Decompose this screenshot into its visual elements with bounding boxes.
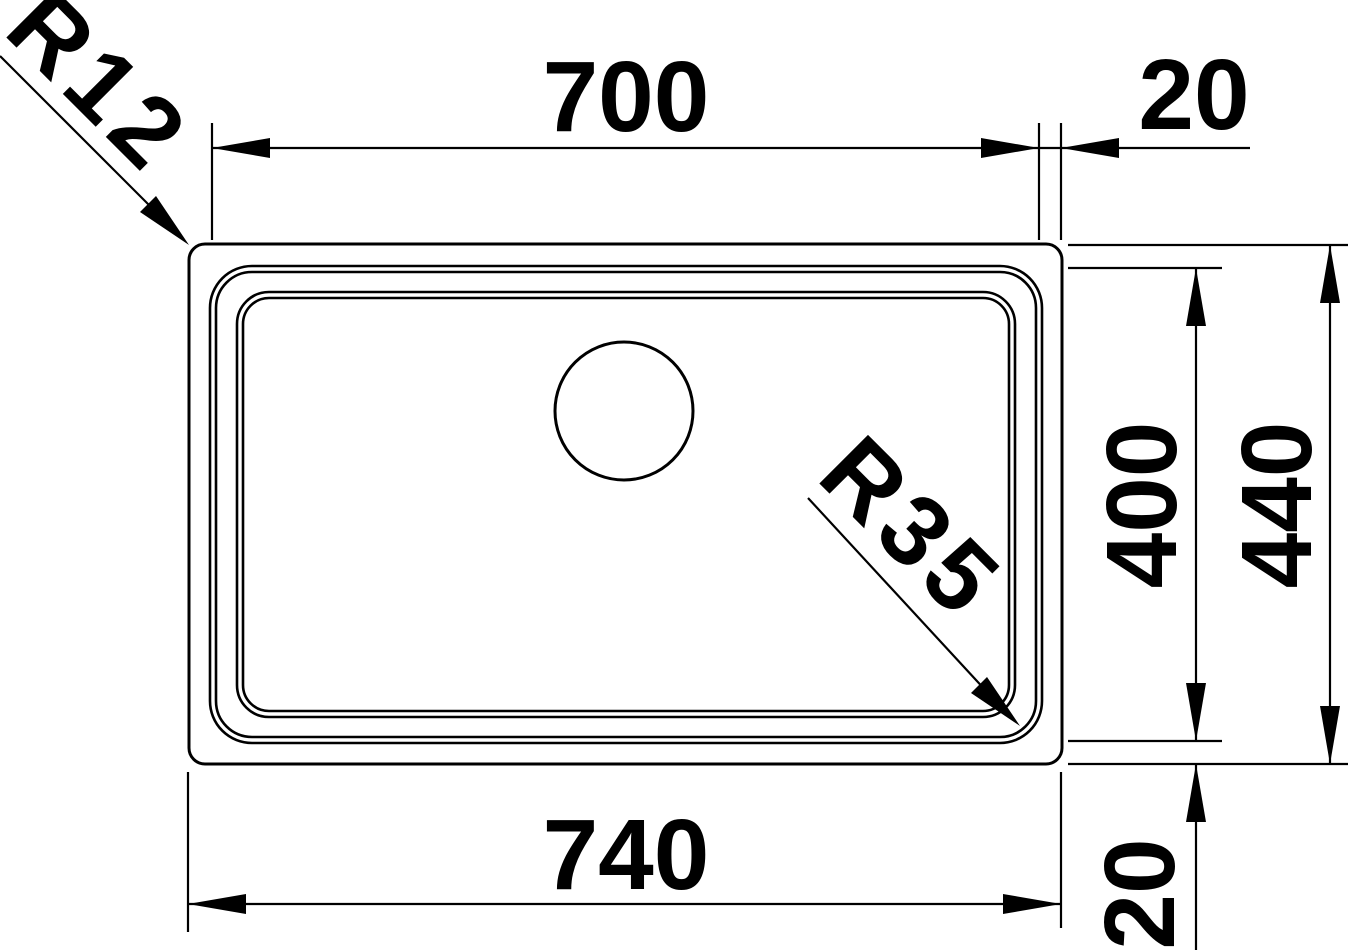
dimension-value-inner-height: 400	[1086, 422, 1198, 589]
arrowhead-down	[1320, 706, 1340, 764]
dimension-top-right-offset-20: 20	[1061, 39, 1250, 158]
arrowhead-up	[1320, 245, 1340, 303]
radius-callout-r12: R12	[0, 0, 212, 245]
radius-value-bowl-corner: R35	[799, 415, 1025, 641]
sink-dimension-drawing: 700 20 400 440 20	[0, 0, 1354, 950]
arrowhead-up	[1186, 268, 1206, 326]
dimension-inner-height-400: 400	[1068, 268, 1222, 741]
dimension-value-bottom-width: 740	[543, 799, 710, 911]
arrowhead-right	[981, 138, 1039, 158]
arrowhead-right	[1003, 894, 1061, 914]
dimension-bottom-right-offset-20: 20	[1084, 764, 1206, 950]
technical-drawing-page: 700 20 400 440 20	[0, 0, 1354, 950]
dimension-value-top-width: 700	[543, 41, 710, 153]
dimension-value-bottom-right-offset: 20	[1084, 838, 1196, 949]
dimension-top-width-700: 700	[212, 41, 1250, 240]
arrowhead-down	[1186, 683, 1206, 741]
dimension-value-top-right-offset: 20	[1138, 39, 1249, 151]
drain-hole-circle	[555, 342, 693, 480]
arrowhead-up	[1186, 764, 1206, 822]
arrowhead-left	[212, 138, 270, 158]
arrowhead-diagonal	[971, 677, 1020, 726]
dimension-bottom-width-740: 740	[188, 772, 1061, 932]
dimension-value-outer-height: 440	[1221, 422, 1333, 589]
radius-value-outer-corner: R12	[0, 0, 212, 195]
arrowhead-left	[1061, 138, 1119, 158]
radius-callout-r35: R35	[799, 415, 1025, 726]
arrowhead-left	[188, 894, 246, 914]
